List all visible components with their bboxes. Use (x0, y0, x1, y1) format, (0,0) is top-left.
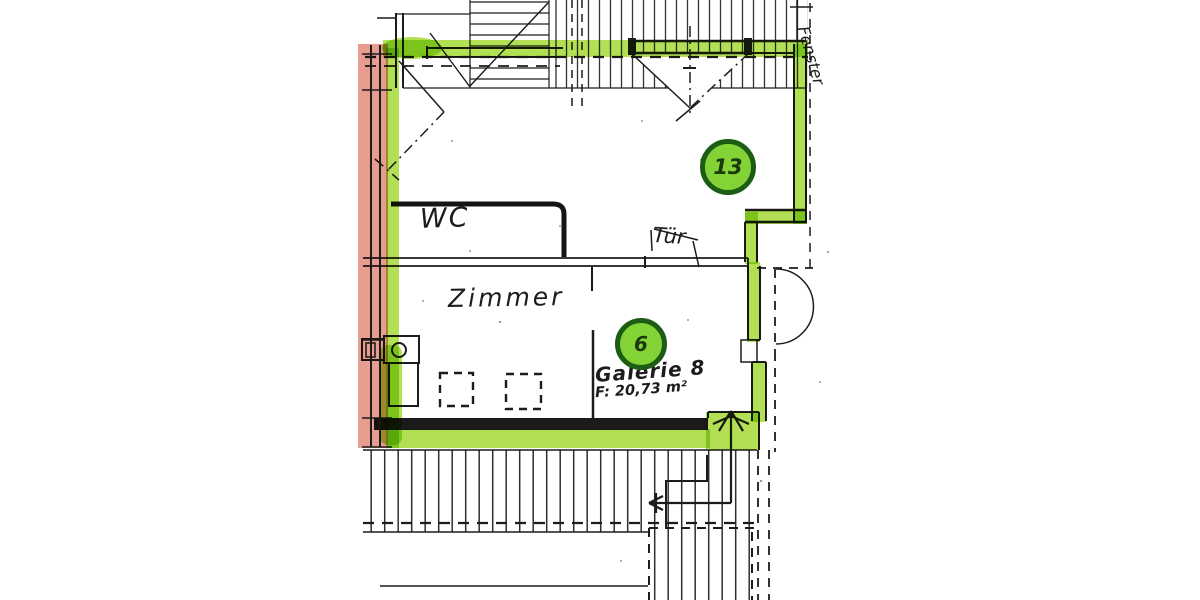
floor-plan-drawing (0, 0, 1200, 600)
door-arc (757, 268, 813, 452)
tuer-label: Tür (652, 223, 686, 249)
zimmer-galerie-partition (592, 266, 593, 421)
middle-wall (363, 256, 748, 268)
bottom-roof-hatch (363, 450, 769, 600)
zimmer-label: Zimmer (448, 282, 565, 313)
gallery-number-badge: 6 (615, 318, 667, 370)
room-number-badge-13: 13 (700, 139, 756, 195)
wc-partition-marker (391, 204, 564, 257)
gallery-number-text: 6 (634, 332, 648, 356)
wc-label: WC (419, 202, 470, 235)
floor-plan: WC Tür Zimmer Galerie 8 F: 20,73 m² Fens… (0, 0, 1200, 600)
room-number-13-text: 13 (713, 155, 742, 179)
skylight-squares (440, 373, 541, 409)
